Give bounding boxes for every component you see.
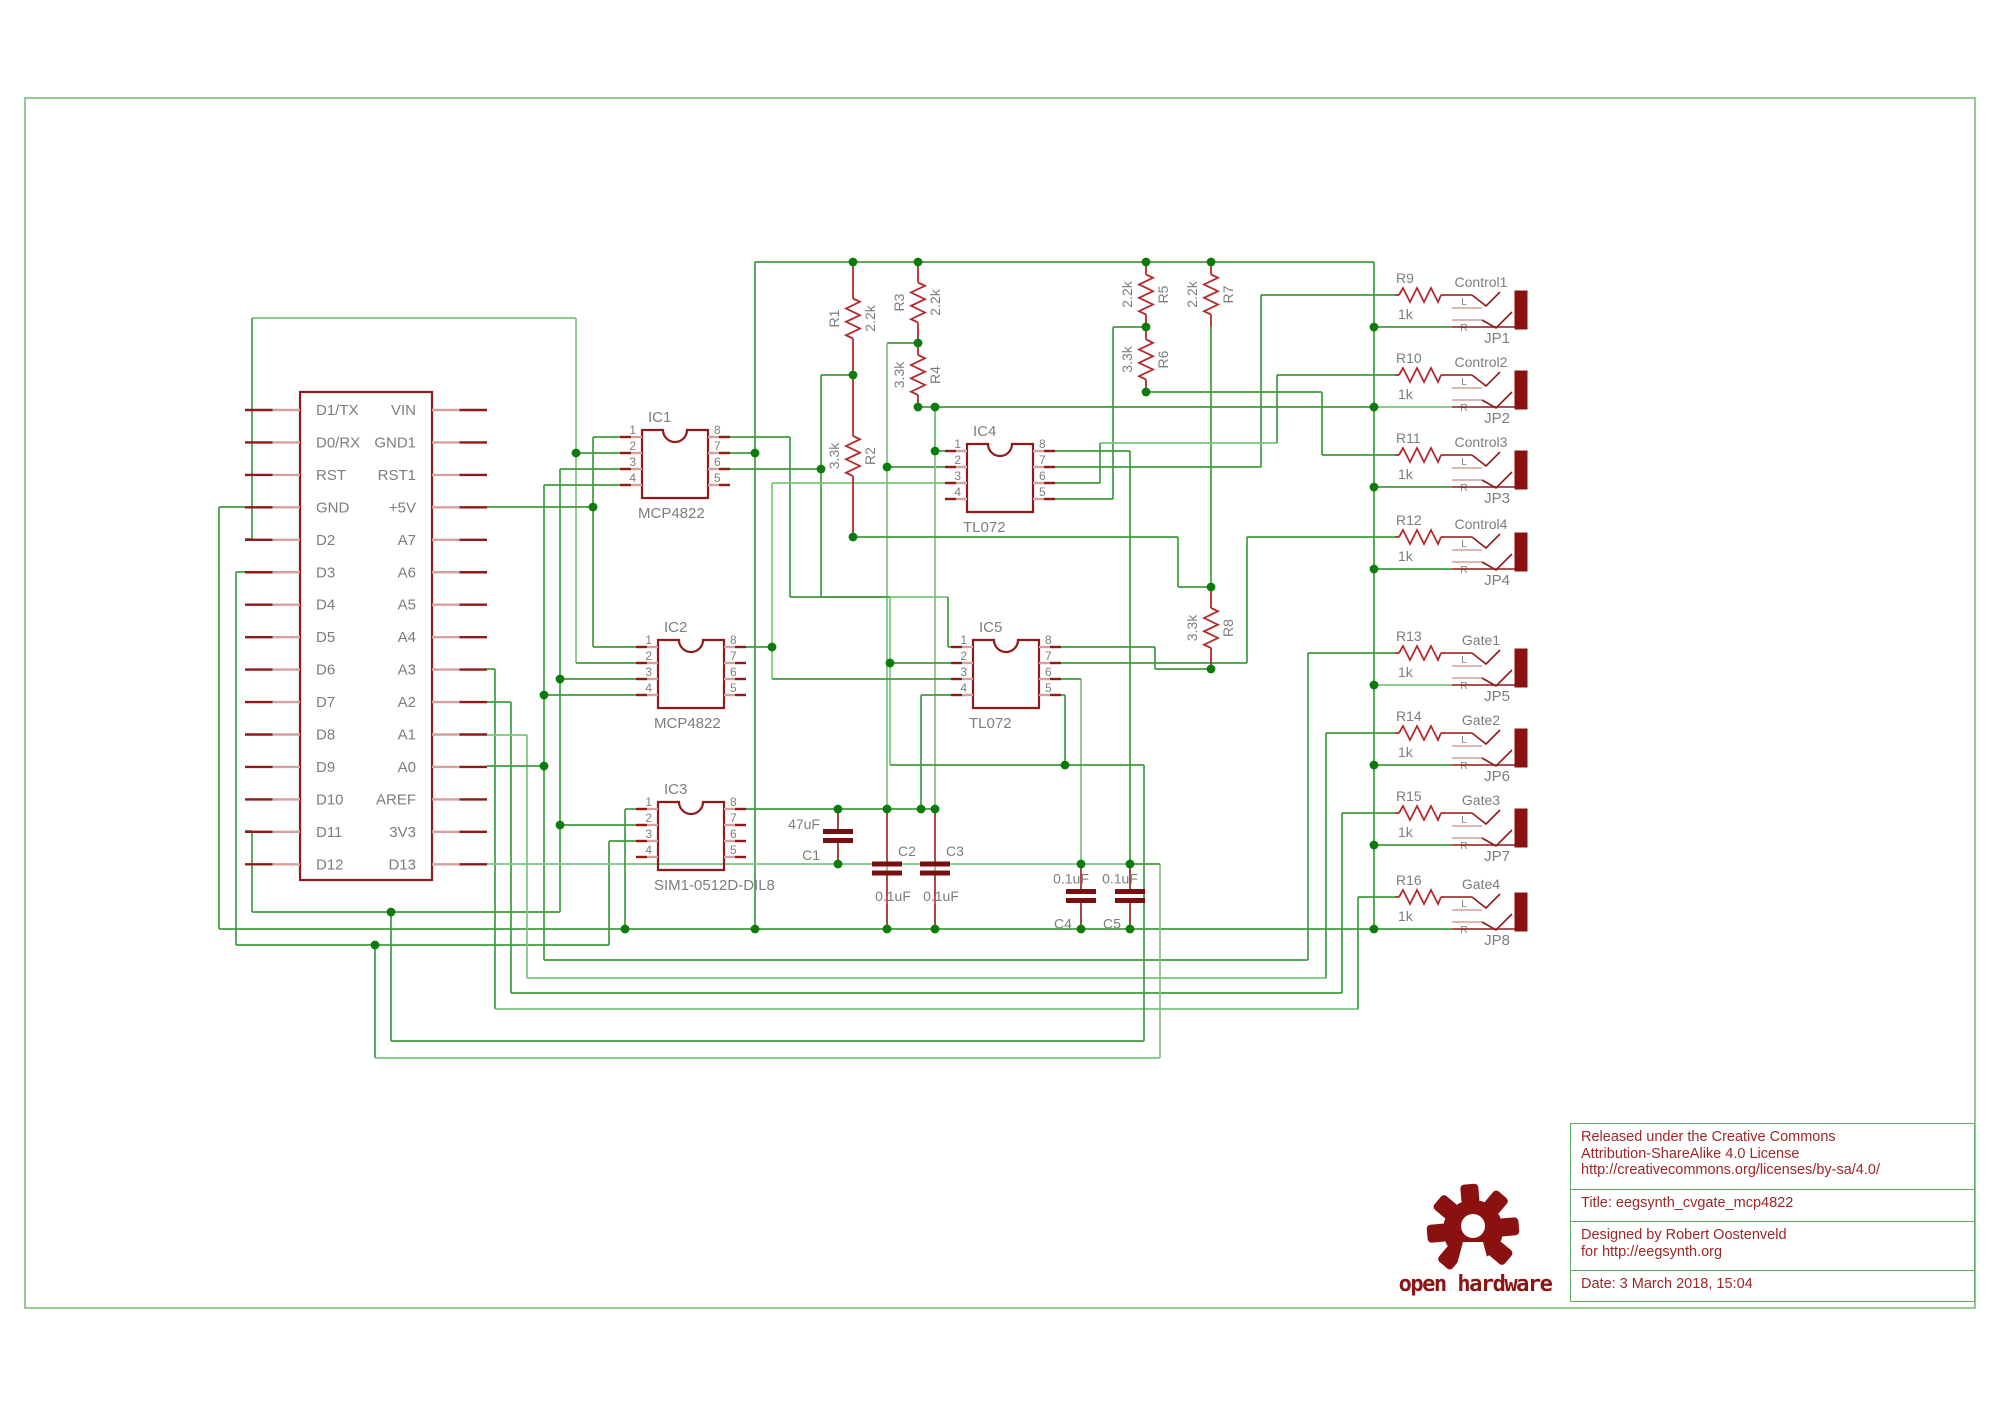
jack-r-label: R — [1460, 925, 1467, 936]
jack-ring-contact — [1482, 830, 1512, 846]
ic-pin-number: 6 — [730, 665, 737, 679]
jack-JP4 — [1515, 533, 1527, 571]
resistor-ref: R8 — [1220, 619, 1236, 637]
resistor-ref: R9 — [1396, 270, 1414, 286]
ic-pin-number: 1 — [960, 633, 967, 647]
resistor-ref: R5 — [1155, 285, 1171, 303]
jack-JP7 — [1515, 809, 1527, 847]
ic-pin-number: 7 — [730, 811, 737, 825]
junction-dot — [849, 533, 858, 542]
ic-pin-number: 3 — [960, 665, 967, 679]
mcu-pin-label: D11 — [316, 824, 342, 841]
junction-dot — [556, 675, 565, 684]
resistor-ref: R14 — [1396, 708, 1422, 724]
ic-pin-number: 5 — [730, 681, 737, 695]
ic-pin-number: 2 — [629, 439, 636, 453]
junction-dot — [886, 659, 895, 668]
cap-ref: C5 — [1103, 916, 1121, 932]
jack-signal-label: Control3 — [1455, 434, 1508, 450]
resistor-value: 1k — [1398, 548, 1414, 564]
jack-signal-label: Control4 — [1455, 516, 1508, 532]
ic-value: MCP4822 — [638, 505, 705, 522]
designer-line: Designed by Robert Oostenveld — [1581, 1227, 1974, 1244]
ic-pin-number: 1 — [954, 437, 961, 451]
ic-pin-number: 2 — [960, 649, 967, 663]
jack-signal-label: Gate3 — [1462, 792, 1500, 808]
mcu-pin-label: A3 — [398, 662, 416, 679]
ic-pin-number: 8 — [1045, 633, 1052, 647]
gear-part — [1498, 1217, 1519, 1237]
ic-IC4 — [967, 444, 1033, 512]
ic-pin-number: 3 — [954, 469, 961, 483]
mcu-pin-label: D10 — [316, 791, 344, 808]
resistor-ref: R15 — [1396, 788, 1422, 804]
jack-ring-contact — [1482, 554, 1512, 570]
resistor-value: 3.3k — [891, 361, 907, 388]
resistor-ref: R2 — [862, 447, 878, 465]
jack-r-label: R — [1460, 761, 1467, 772]
mcu-pin-label: A6 — [398, 564, 416, 581]
jack-signal-label: Control2 — [1455, 354, 1508, 370]
jack-JP6 — [1515, 729, 1527, 767]
jack-tip-contact — [1472, 650, 1500, 664]
junction-dot — [387, 908, 396, 917]
ic-pin-number: 7 — [1045, 649, 1052, 663]
jack-tip-contact — [1472, 894, 1500, 908]
ic-pin-number: 8 — [730, 795, 737, 809]
mcu-pin-label: A0 — [398, 759, 416, 776]
cap-value: 0.1uF — [1102, 871, 1138, 887]
junction-dot — [849, 258, 858, 267]
jack-jp-label: JP1 — [1484, 330, 1510, 347]
jack-r-label: R — [1460, 681, 1467, 692]
junction-dot — [1370, 483, 1379, 492]
resistor-ref: R13 — [1396, 628, 1422, 644]
ic-pin-number: 1 — [645, 633, 652, 647]
junction-dot — [621, 925, 630, 934]
junction-dot — [371, 941, 380, 950]
junction-dot — [914, 258, 923, 267]
oshw-logo-text: open hardware — [1385, 1272, 1565, 1297]
resistor-ref: R7 — [1220, 285, 1236, 303]
license-line: Released under the Creative Commons — [1581, 1129, 1974, 1146]
mcu-pin-label: D7 — [316, 694, 335, 711]
jack-ring-contact — [1482, 472, 1512, 488]
ic-pin-number: 4 — [960, 681, 967, 695]
resistor-value: 1k — [1398, 824, 1414, 840]
ic-pin-number: 4 — [629, 471, 636, 485]
mcu-pin-label: AREF — [376, 791, 416, 808]
mcu-pin-label: D12 — [316, 856, 344, 873]
jack-ring-contact — [1482, 312, 1512, 328]
license-line: Attribution-ShareAlike 4.0 License — [1581, 1146, 1974, 1163]
cap-value: 0.1uF — [875, 888, 911, 904]
jack-l-label: L — [1461, 655, 1467, 666]
resistor-R5 — [1139, 275, 1153, 315]
resistor-R11 — [1399, 448, 1441, 462]
jack-signal-label: Gate2 — [1462, 712, 1500, 728]
junction-dot — [849, 371, 858, 380]
resistor-R6 — [1139, 340, 1153, 380]
resistor-R14 — [1399, 726, 1441, 740]
junction-dot — [1207, 583, 1216, 592]
junction-dot — [1370, 323, 1379, 332]
mcu-pin-label: VIN — [391, 402, 416, 419]
resistor-ref: R10 — [1396, 350, 1422, 366]
junction-dot — [914, 403, 923, 412]
ic-pin-number: 7 — [1039, 453, 1046, 467]
resistor-R2 — [846, 436, 860, 476]
resistor-R8 — [1204, 608, 1218, 648]
jack-JP1 — [1515, 291, 1527, 329]
gear-part — [1426, 1223, 1447, 1243]
jack-tip-contact — [1472, 292, 1500, 306]
resistor-R3 — [911, 283, 925, 323]
junction-dot — [1061, 761, 1070, 770]
ic-value: TL072 — [969, 715, 1012, 732]
junction-dot — [917, 805, 926, 814]
jack-jp-label: JP2 — [1484, 410, 1510, 427]
junction-dot — [883, 805, 892, 814]
junction-dot — [589, 503, 598, 512]
resistor-R4 — [911, 355, 925, 395]
junction-dot — [883, 463, 892, 472]
gear-icon — [1426, 1183, 1519, 1271]
jack-JP8 — [1515, 893, 1527, 931]
resistor-R13 — [1399, 646, 1441, 660]
ic-pin-number: 5 — [1039, 485, 1046, 499]
cap-value: 0.1uF — [923, 888, 959, 904]
resistor-ref: R3 — [891, 293, 907, 311]
resistor-value: 2.2k — [862, 304, 878, 331]
resistor-R1 — [846, 299, 860, 339]
jack-JP5 — [1515, 649, 1527, 687]
resistor-value: 1k — [1398, 306, 1414, 322]
resistor-value: 1k — [1398, 386, 1414, 402]
jack-signal-label: Gate1 — [1462, 632, 1500, 648]
jack-signal-label: Gate4 — [1462, 876, 1500, 892]
mcu-pin-label: GND1 — [374, 434, 416, 451]
junction-dot — [1142, 258, 1151, 267]
mcu-pin-label: RST — [316, 467, 346, 484]
jack-r-label: R — [1460, 483, 1467, 494]
ic-pin-number: 8 — [730, 633, 737, 647]
resistor-ref: R16 — [1396, 872, 1422, 888]
jack-ring-contact — [1482, 750, 1512, 766]
ic-IC5 — [973, 640, 1039, 708]
mcu-pin-label: D3 — [316, 564, 335, 581]
junction-dot — [1077, 860, 1086, 869]
jack-tip-contact — [1472, 730, 1500, 744]
ic-pin-number: 1 — [629, 423, 636, 437]
resistor-value: 3.3k — [1119, 345, 1135, 372]
resistor-ref: R12 — [1396, 512, 1422, 528]
jack-l-label: L — [1461, 899, 1467, 910]
jack-l-label: L — [1461, 815, 1467, 826]
resistor-ref: R6 — [1155, 350, 1171, 368]
license-line: http://creativecommons.org/licenses/by-s… — [1581, 1162, 1974, 1179]
ic-pin-number: 3 — [629, 455, 636, 469]
resistor-ref: R11 — [1396, 430, 1421, 446]
ic-pin-number: 4 — [645, 843, 652, 857]
ic-value: TL072 — [963, 519, 1006, 536]
resistor-R15 — [1399, 806, 1441, 820]
ic-pin-number: 6 — [714, 455, 721, 469]
junction-dot — [1077, 925, 1086, 934]
junction-dot — [931, 447, 940, 456]
cap-ref: C2 — [898, 843, 916, 859]
ic-value: SIM1-0512D-DIL8 — [654, 877, 775, 894]
ic-pin-number: 4 — [645, 681, 652, 695]
junction-dot — [1370, 841, 1379, 850]
resistor-value: 1k — [1398, 466, 1414, 482]
junction-dot — [834, 805, 843, 814]
mcu-pin-label: RST1 — [378, 467, 416, 484]
jack-ring-contact — [1482, 670, 1512, 686]
ic-pin-number: 2 — [645, 811, 652, 825]
jack-jp-label: JP6 — [1484, 768, 1510, 785]
jack-l-label: L — [1461, 457, 1467, 468]
mcu-pin-label: A2 — [398, 694, 416, 711]
ic-pin-number: 2 — [954, 453, 961, 467]
resistor-value: 1k — [1398, 744, 1414, 760]
resistor-R16 — [1399, 890, 1441, 904]
resistor-R12 — [1399, 530, 1441, 544]
ic-pin-number: 7 — [730, 649, 737, 663]
jack-jp-label: JP4 — [1484, 572, 1510, 589]
mcu-pin-label: D1/TX — [316, 402, 359, 419]
cap-ref: C4 — [1054, 916, 1072, 932]
junction-dot — [1142, 388, 1151, 397]
ic-pin-number: 7 — [714, 439, 721, 453]
title-block-designer: Designed by Robert Oostenveld for http:/… — [1571, 1222, 1974, 1271]
junction-dot — [751, 925, 760, 934]
mcu-pin-label: D2 — [316, 532, 335, 549]
jack-jp-label: JP5 — [1484, 688, 1510, 705]
mcu-pin-label: D0/RX — [316, 434, 360, 451]
mcu-pin-label: D5 — [316, 629, 335, 646]
cap-value: 0.1uF — [1053, 871, 1089, 887]
ic-pin-number: 6 — [730, 827, 737, 841]
jack-r-label: R — [1460, 841, 1467, 852]
resistor-value: 3.3k — [826, 442, 842, 469]
cap-ref: C1 — [802, 847, 820, 863]
ic-pin-number: 6 — [1045, 665, 1052, 679]
jack-r-label: R — [1460, 403, 1467, 414]
jack-l-label: L — [1461, 539, 1467, 550]
junction-dot — [768, 643, 777, 652]
mcu-pin-label: GND — [316, 499, 350, 516]
title-block-title: Title: eegsynth_cvgate_mcp4822 — [1571, 1190, 1974, 1222]
junction-dot — [883, 925, 892, 934]
mcu-pin-label: D13 — [388, 856, 416, 873]
jack-tip-contact — [1472, 534, 1500, 548]
ic-pin-number: 3 — [645, 665, 652, 679]
mcu-pin-label: 3V3 — [389, 824, 416, 841]
junction-dot — [540, 762, 549, 771]
jack-JP2 — [1515, 371, 1527, 409]
designer-line: for http://eegsynth.org — [1581, 1244, 1974, 1261]
ic-pin-number: 5 — [1045, 681, 1052, 695]
junction-dot — [1370, 681, 1379, 690]
jack-jp-label: JP8 — [1484, 932, 1510, 949]
ic-pin-number: 3 — [645, 827, 652, 841]
ic-IC3 — [658, 802, 724, 870]
jack-ring-contact — [1482, 392, 1512, 408]
ic-ref: IC5 — [979, 619, 1002, 636]
junction-dot — [817, 465, 826, 474]
ic-pin-number: 2 — [645, 649, 652, 663]
ic-pin-number: 8 — [1039, 437, 1046, 451]
mcu-pin-label: D9 — [316, 759, 335, 776]
junction-dot — [556, 821, 565, 830]
jack-ring-contact — [1482, 914, 1512, 930]
ic-ref: IC2 — [664, 619, 687, 636]
junction-dot — [1370, 925, 1379, 934]
resistor-R10 — [1399, 368, 1441, 382]
junction-dot — [572, 449, 581, 458]
resistor-ref: R4 — [927, 366, 943, 384]
mcu-pin-label: D8 — [316, 727, 335, 744]
ic-IC2 — [658, 640, 724, 708]
gear-part — [1460, 1183, 1480, 1204]
junction-dot — [1370, 565, 1379, 574]
jack-jp-label: JP3 — [1484, 490, 1510, 507]
gear-part — [1461, 1214, 1485, 1238]
junction-dot — [1207, 258, 1216, 267]
resistor-R7 — [1204, 275, 1218, 315]
mcu-pin-label: D6 — [316, 662, 335, 679]
mcu-pin-label: A5 — [398, 597, 416, 614]
junction-dot — [1370, 403, 1379, 412]
junction-dot — [1142, 323, 1151, 332]
jack-signal-label: Control1 — [1455, 274, 1508, 290]
resistor-ref: R1 — [826, 309, 842, 327]
title-block: Released under the Creative Commons Attr… — [1570, 1123, 1975, 1302]
junction-dot — [1207, 665, 1216, 674]
jack-tip-contact — [1472, 452, 1500, 466]
resistor-value: 2.2k — [1184, 280, 1200, 307]
jack-l-label: L — [1461, 735, 1467, 746]
schematic-page: D1/TXD0/RXRSTGNDD2D3D4D5D6D7D8D9D10D11D1… — [0, 0, 2000, 1413]
mcu-pin-label: +5V — [389, 499, 416, 516]
junction-dot — [1370, 761, 1379, 770]
junction-dot — [931, 805, 940, 814]
junction-dot — [751, 449, 760, 458]
jack-tip-contact — [1472, 372, 1500, 386]
ic-pin-number: 5 — [730, 843, 737, 857]
junction-dot — [914, 339, 923, 348]
cap-ref: C3 — [946, 843, 964, 859]
ic-ref: IC4 — [973, 423, 996, 440]
resistor-R9 — [1399, 288, 1441, 302]
junction-dot — [1126, 925, 1135, 934]
ic-pin-number: 1 — [645, 795, 652, 809]
title-block-license: Released under the Creative Commons Attr… — [1571, 1124, 1974, 1190]
jack-jp-label: JP7 — [1484, 848, 1510, 865]
ic-value: MCP4822 — [654, 715, 721, 732]
resistor-value: 2.2k — [927, 288, 943, 315]
mcu-pin-label: A7 — [398, 532, 416, 549]
ic-pin-number: 5 — [714, 471, 721, 485]
ic-ref: IC1 — [648, 409, 671, 426]
jack-JP3 — [1515, 451, 1527, 489]
title-block-date: Date: 3 March 2018, 15:04 — [1571, 1271, 1974, 1301]
mcu-pin-label: A1 — [398, 727, 416, 744]
junction-dot — [931, 925, 940, 934]
jack-r-label: R — [1460, 323, 1467, 334]
resistor-value: 2.2k — [1119, 280, 1135, 307]
cap-value: 47uF — [788, 816, 820, 832]
ic-pin-number: 6 — [1039, 469, 1046, 483]
junction-dot — [540, 691, 549, 700]
ic-ref: IC3 — [664, 781, 687, 798]
jack-l-label: L — [1461, 377, 1467, 388]
junction-dot — [1126, 860, 1135, 869]
ic-pin-number: 4 — [954, 485, 961, 499]
jack-tip-contact — [1472, 810, 1500, 824]
jack-r-label: R — [1460, 565, 1467, 576]
junction-dot — [931, 403, 940, 412]
mcu-pin-label: D4 — [316, 597, 335, 614]
ic-pin-number: 8 — [714, 423, 721, 437]
mcu-pin-label: A4 — [398, 629, 416, 646]
jack-l-label: L — [1461, 297, 1467, 308]
ic-IC1 — [642, 430, 708, 498]
resistor-value: 3.3k — [1184, 614, 1200, 641]
resistor-value: 1k — [1398, 664, 1414, 680]
resistor-value: 1k — [1398, 908, 1414, 924]
junction-dot — [834, 860, 843, 869]
